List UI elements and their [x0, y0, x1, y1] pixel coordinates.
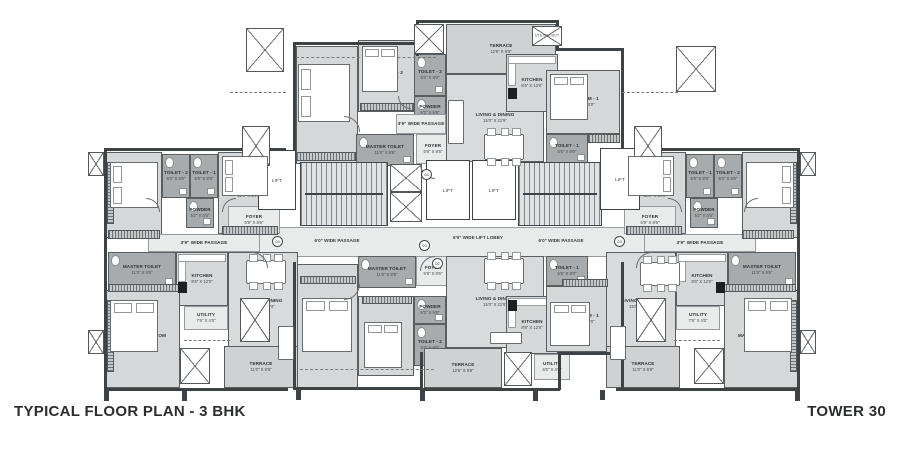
hatch-band — [108, 284, 182, 292]
dining-table — [484, 258, 524, 284]
hatch-band — [562, 279, 608, 287]
tower-label: TOWER 30 — [807, 403, 886, 420]
duct-shaft — [88, 330, 104, 354]
kitchen-appliance — [178, 282, 187, 293]
duct-shaft — [800, 330, 816, 354]
n-master-toilet-label: MASTER TOILET11'0" X 8'6" — [366, 144, 404, 156]
duct-shaft — [414, 24, 444, 54]
kitchen-appliance — [508, 88, 517, 99]
dashed-line — [184, 340, 230, 341]
hatch-band — [626, 226, 682, 235]
duct-shaft — [504, 352, 532, 386]
bed — [222, 156, 268, 196]
s-terrace-label: TERRACE12'6" X 6'9" — [452, 362, 475, 374]
grid-marker: 03 — [272, 236, 283, 247]
hatch-band — [742, 230, 794, 239]
wall-segment — [795, 391, 800, 401]
s-toilet-1-label: TOILET - 15'6" X 8'0" — [555, 265, 579, 277]
wall-segment — [600, 390, 605, 400]
duct-shaft — [88, 152, 104, 176]
duct-shaft — [800, 152, 816, 176]
hatch-band — [588, 134, 620, 143]
kitchen-appliance — [508, 300, 517, 311]
w-kitchen-label: KITCHEN8'6" X 12'0" — [191, 273, 212, 285]
bed — [550, 74, 588, 120]
wall-segment — [182, 391, 187, 401]
wall-segment — [420, 388, 560, 391]
wall-segment — [416, 20, 559, 23]
bed — [362, 46, 398, 92]
plan-title: TYPICAL FLOOR PLAN - 3 BHK — [14, 403, 246, 420]
hatch-band — [300, 276, 356, 284]
sofa — [448, 100, 464, 144]
w-master-toilet-label: MASTER TOILET11'0" X 8'6" — [123, 264, 161, 276]
corridor-label: 6'0" WIDE PASSAGE — [538, 238, 583, 244]
e-passage-label: 3'9" WIDE PASSAGE — [677, 240, 724, 246]
duct-shaft — [636, 298, 666, 342]
grid-marker: 02 — [432, 258, 443, 269]
bed — [744, 298, 792, 352]
lift-lobby-corridor — [252, 227, 652, 257]
e-utility-label: UTILITY7'6" X 4'0" — [688, 312, 707, 324]
n-living-dining-label: LIVING & DINING15'0" X 21'9" — [476, 112, 515, 124]
duct-shaft — [240, 298, 270, 342]
hatch-band — [296, 152, 356, 161]
corridor-label: UTILITY DUCT — [535, 34, 559, 39]
e-foyer-label: FOYER5'9" X 8'6" — [640, 214, 659, 226]
staircase — [518, 162, 602, 226]
wall-segment — [556, 48, 624, 51]
duct-shaft — [180, 348, 210, 384]
wall-segment — [797, 148, 800, 391]
n-passage-label: 3'9" WIDE PASSAGE — [398, 121, 445, 127]
dashed-line — [622, 92, 678, 93]
w-foyer-label: FOYER5'9" X 8'6" — [244, 214, 263, 226]
duct-shaft — [246, 28, 284, 72]
w-toilet-2-label: TOILET - 25'0" X 8'0" — [164, 170, 188, 182]
e-powder-label: POWDER5'2" X 5'6" — [693, 207, 714, 219]
w-terrace-label: TERRACE11'0" X 6'9" — [250, 361, 273, 373]
w-passage-label: 3'9" WIDE PASSAGE — [181, 240, 228, 246]
dashed-line — [230, 92, 286, 93]
s-powder-label: POWDER5'2" X 5'6" — [419, 304, 440, 316]
bed — [550, 302, 590, 346]
duct-shaft — [390, 164, 422, 192]
w-toilet-1-label: TOILET - 15'6" X 8'0" — [192, 170, 216, 182]
sofa — [610, 326, 626, 360]
dining-table — [484, 134, 524, 160]
bed — [628, 156, 674, 196]
dashed-line — [300, 369, 434, 370]
n-toilet-1-label: TOILET - 15'6" X 8'0" — [555, 143, 579, 155]
sofa — [490, 332, 522, 344]
e-kitchen-label: KITCHEN8'6" X 12'0" — [691, 273, 712, 285]
duct-shaft — [694, 348, 724, 384]
s-kitchen-label: KITCHEN8'6" X 12'0" — [521, 319, 542, 331]
corridor-label: 6'0" WIDE PASSAGE — [314, 238, 359, 244]
bed — [364, 322, 402, 368]
n-toilet-2-label: TOILET - 25'0" X 8'0" — [418, 69, 442, 81]
hatch-band — [108, 230, 160, 239]
hatch-band — [222, 226, 278, 235]
n-foyer-label: FOYER5'9" X 8'6" — [423, 143, 442, 155]
wall-segment — [293, 42, 419, 45]
bed — [302, 298, 352, 352]
bed — [110, 300, 158, 352]
corridor-label: 6'0" WIDE LIFT LOBBY — [453, 235, 503, 241]
staircase — [300, 162, 388, 226]
wall-segment — [558, 352, 561, 390]
duct-shaft — [390, 192, 422, 222]
e-toilet-1-label: TOILET - 15'6" X 8'0" — [688, 170, 712, 182]
hatch-band — [722, 284, 796, 292]
grid-marker: 04 — [421, 169, 432, 180]
wall-segment — [296, 390, 301, 400]
wall-segment — [616, 388, 800, 391]
sofa — [278, 326, 294, 360]
wall-segment — [293, 387, 423, 390]
wall-segment — [420, 352, 423, 390]
e-toilet-2-label: TOILET - 25'0" X 8'0" — [716, 170, 740, 182]
kitchen-appliance — [716, 282, 725, 293]
lift-shaft: LIFT — [472, 160, 516, 220]
wall-segment — [104, 391, 109, 401]
duct-shaft — [676, 46, 716, 92]
e-master-toilet-label: MASTER TOILET11'0" X 8'6" — [743, 264, 781, 276]
floor-plan-sheet: MASTER BEDROOM14'0" X 16'0"BEDROOM - 211… — [0, 0, 900, 473]
grid-marker: 03 — [614, 236, 625, 247]
wall-segment — [293, 44, 296, 154]
e-terrace-label: TERRACE11'0" X 6'9" — [632, 361, 655, 373]
bed — [298, 64, 350, 122]
wall-segment — [533, 391, 538, 401]
floor-plan-drawing: MASTER BEDROOM14'0" X 16'0"BEDROOM - 211… — [0, 0, 900, 420]
hatch-band — [362, 296, 412, 304]
dashed-line — [674, 340, 720, 341]
s-master-toilet-label: MASTER TOILET11'0" X 8'6" — [368, 266, 406, 278]
w-powder-label: POWDER5'2" X 5'6" — [189, 207, 210, 219]
wall-segment — [621, 48, 624, 150]
wall-segment — [420, 391, 425, 401]
wall-segment — [104, 388, 288, 391]
n-kitchen-label: KITCHEN8'6" X 12'0" — [521, 77, 542, 89]
grid-marker: 03 — [419, 240, 430, 251]
w-utility-label: UTILITY7'6" X 4'0" — [196, 312, 215, 324]
